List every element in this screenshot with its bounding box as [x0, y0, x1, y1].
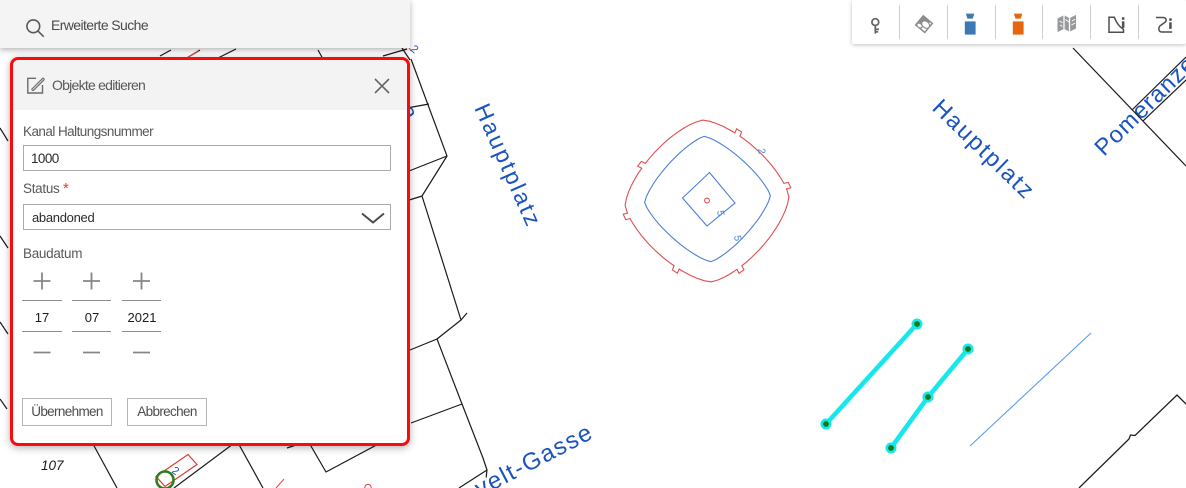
svg-text:5: 5 — [714, 210, 726, 218]
svg-text:velt-Gasse: velt-Gasse — [470, 418, 598, 488]
svg-text:Pomeranzeng: Pomeranzeng — [1089, 30, 1186, 160]
svg-text:5: 5 — [731, 235, 743, 243]
svg-text:Hauptplatz: Hauptplatz — [928, 94, 1041, 205]
svg-text:107: 107 — [41, 458, 64, 473]
svg-text:Hauptplatz: Hauptplatz — [469, 99, 547, 231]
